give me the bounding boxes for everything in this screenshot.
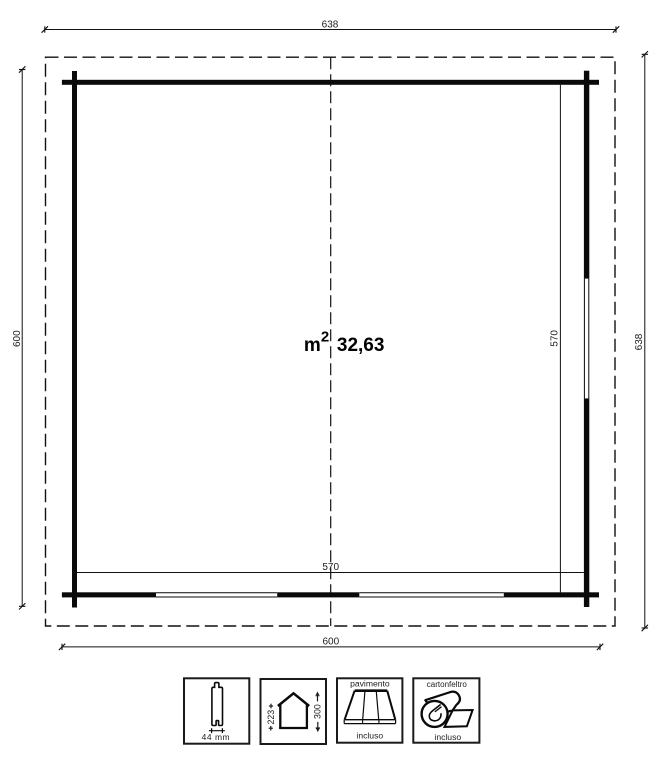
svg-text:incluso: incluso	[356, 731, 383, 741]
svg-text:incluso: incluso	[434, 732, 461, 742]
svg-text:600: 600	[322, 637, 339, 648]
svg-text:600: 600	[12, 330, 23, 347]
svg-text:pavimento: pavimento	[350, 679, 390, 689]
svg-text:32,63: 32,63	[337, 335, 385, 356]
svg-text:223: 223	[266, 710, 276, 725]
svg-text:300: 300	[313, 704, 323, 719]
svg-text:570: 570	[549, 330, 560, 347]
svg-text:44 mm: 44 mm	[202, 732, 230, 742]
svg-text:cartonfeltro: cartonfeltro	[427, 680, 468, 689]
svg-text:638: 638	[322, 19, 339, 30]
svg-text:638: 638	[634, 333, 645, 350]
svg-text:m: m	[304, 335, 321, 356]
svg-text:2: 2	[321, 329, 329, 346]
svg-text:570: 570	[322, 562, 339, 573]
